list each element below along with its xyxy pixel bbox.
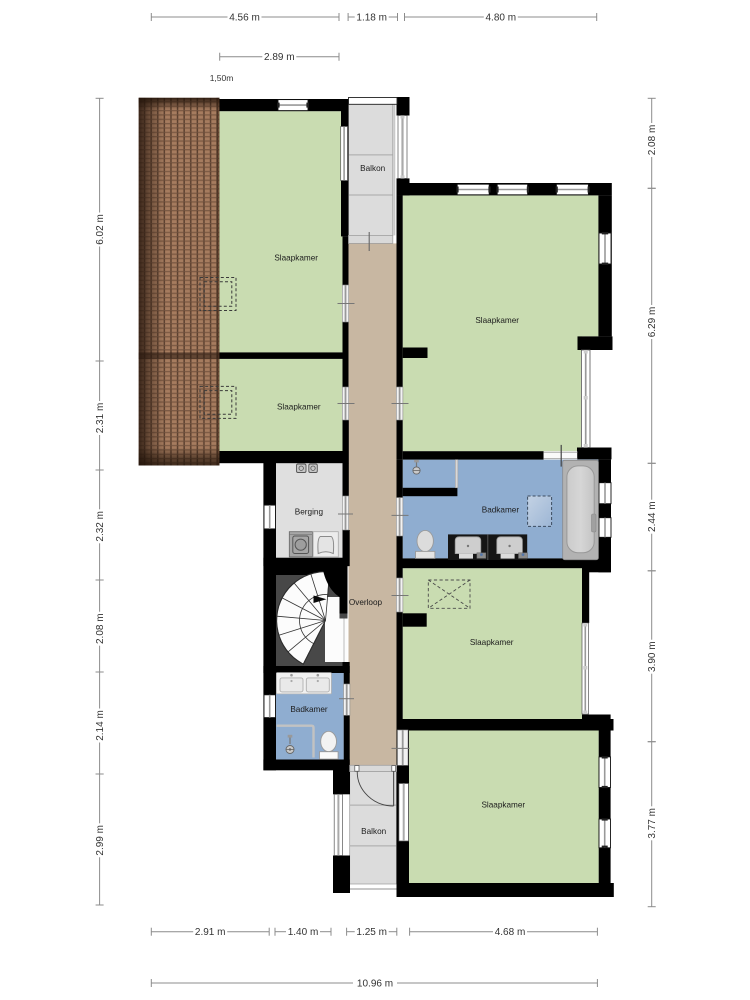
svg-text:Balkon: Balkon — [361, 827, 386, 836]
svg-text:Slaapkamer: Slaapkamer — [274, 254, 318, 263]
svg-text:1.18 m: 1.18 m — [356, 13, 387, 24]
svg-text:2.91 m: 2.91 m — [195, 927, 226, 938]
svg-text:2.08 m: 2.08 m — [647, 125, 658, 156]
svg-text:10.96 m: 10.96 m — [357, 979, 393, 990]
svg-text:3.90 m: 3.90 m — [647, 641, 658, 672]
svg-text:1.40 m: 1.40 m — [288, 927, 319, 938]
svg-text:6.29 m: 6.29 m — [647, 307, 658, 338]
svg-text:6.02 m: 6.02 m — [95, 214, 106, 245]
svg-text:1,50m: 1,50m — [210, 73, 234, 83]
svg-text:Overloop: Overloop — [349, 598, 383, 607]
svg-text:Slaapkamer: Slaapkamer — [481, 800, 525, 809]
svg-text:Slaapkamer: Slaapkamer — [470, 638, 514, 647]
svg-text:4.80 m: 4.80 m — [486, 13, 517, 24]
svg-text:Badkamer: Badkamer — [482, 506, 520, 515]
svg-text:2.99 m: 2.99 m — [95, 825, 106, 856]
svg-text:4.56 m: 4.56 m — [229, 13, 260, 24]
svg-text:2.31 m: 2.31 m — [95, 403, 106, 434]
svg-text:2.14 m: 2.14 m — [95, 710, 106, 741]
svg-text:2.08 m: 2.08 m — [95, 613, 106, 644]
svg-text:Slaapkamer: Slaapkamer — [277, 403, 321, 412]
svg-text:Berging: Berging — [295, 508, 324, 517]
svg-text:2.32 m: 2.32 m — [95, 511, 106, 542]
svg-text:2.44 m: 2.44 m — [647, 501, 658, 532]
svg-text:3.77 m: 3.77 m — [647, 808, 658, 839]
svg-text:4.68 m: 4.68 m — [495, 927, 526, 938]
svg-text:Slaapkamer: Slaapkamer — [475, 316, 519, 325]
svg-text:Balkon: Balkon — [360, 164, 385, 173]
svg-text:Badkamer: Badkamer — [290, 705, 328, 714]
svg-text:1.25 m: 1.25 m — [356, 927, 387, 938]
svg-text:2.89 m: 2.89 m — [264, 52, 295, 63]
